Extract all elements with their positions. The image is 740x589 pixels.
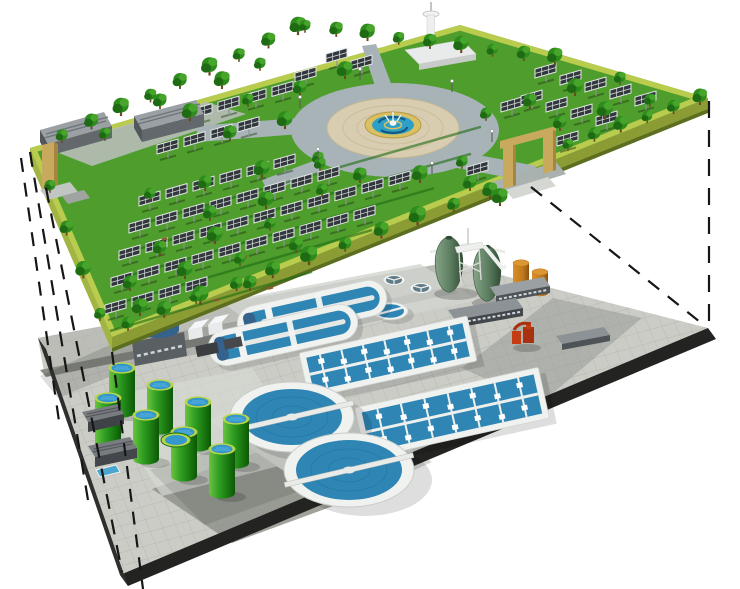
fountain xyxy=(365,112,421,138)
ground-basin xyxy=(161,433,191,447)
tree xyxy=(112,98,128,116)
tree xyxy=(359,24,375,41)
tree xyxy=(254,58,266,71)
tree xyxy=(261,32,275,48)
silo-top xyxy=(513,260,529,266)
cutaway-diagram xyxy=(0,0,740,589)
tree xyxy=(214,71,230,89)
tree xyxy=(329,22,343,37)
tree xyxy=(173,73,187,89)
scene-illustration xyxy=(0,0,740,589)
digester-egg xyxy=(435,236,463,292)
tree xyxy=(233,48,245,62)
tree xyxy=(201,57,217,75)
